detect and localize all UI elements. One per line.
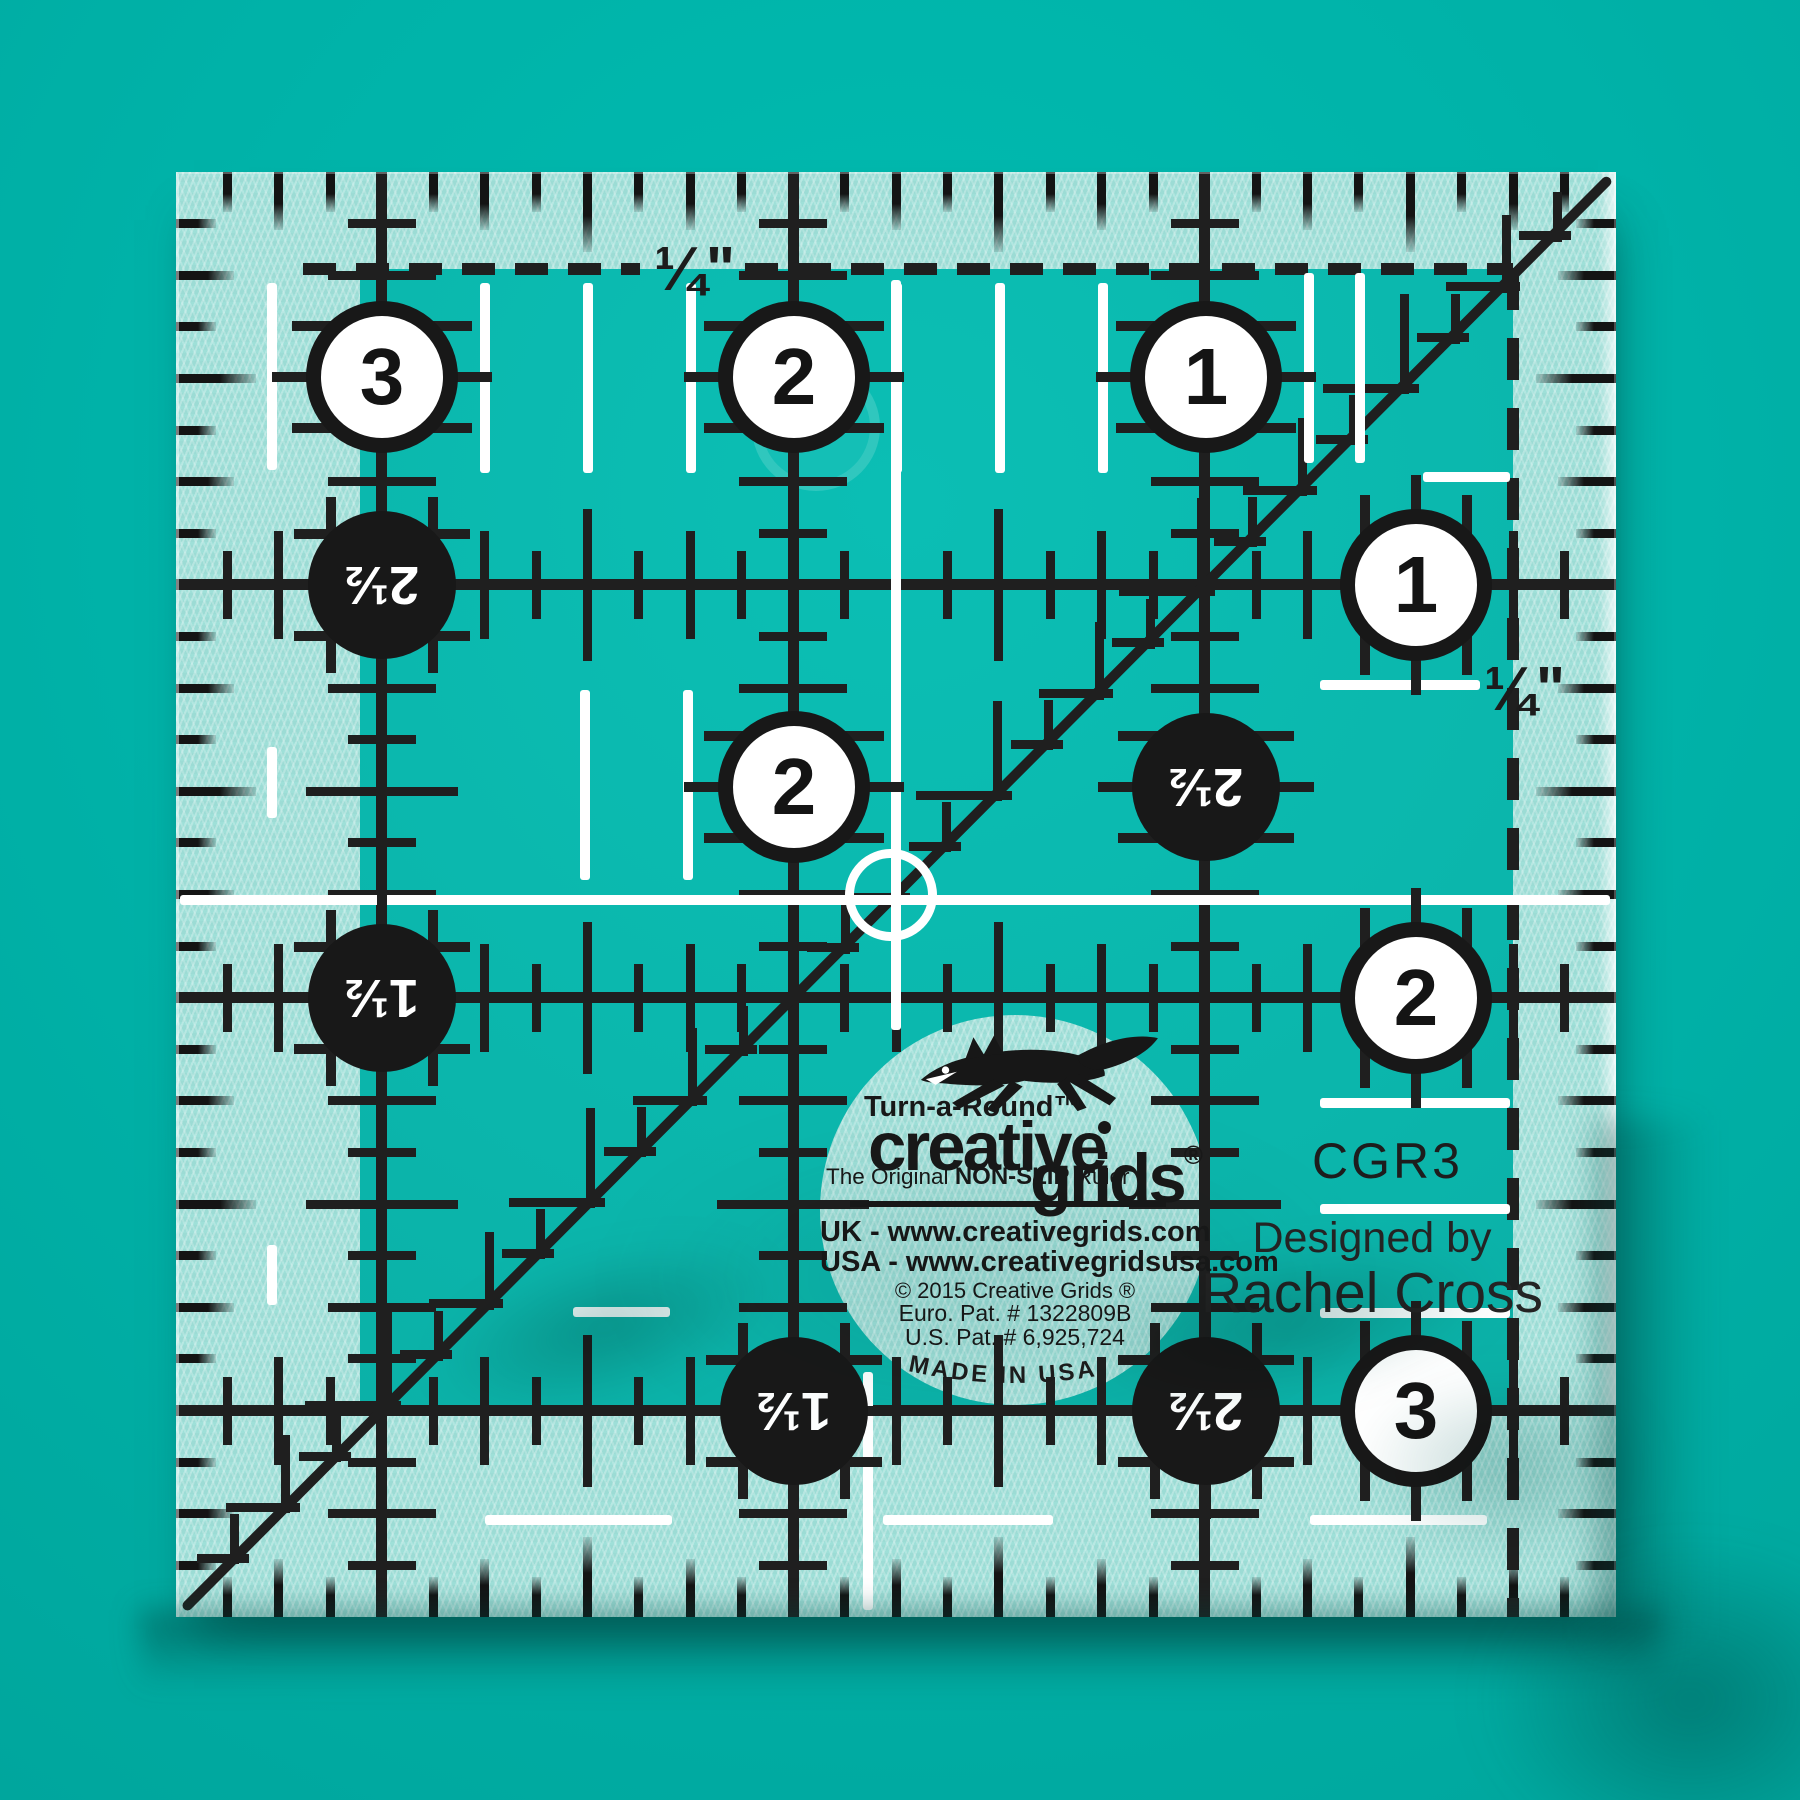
diagonal-feather — [485, 1232, 494, 1310]
diagonal-feather — [909, 842, 961, 851]
cross-tick — [532, 551, 541, 619]
cross-tick — [328, 1509, 436, 1518]
diagonal-feather — [305, 1401, 401, 1410]
cross-tick — [583, 1335, 592, 1487]
cross-tick — [759, 1561, 827, 1570]
cross-tick — [1151, 684, 1259, 693]
measurement-circle-white: 1 — [1340, 509, 1492, 661]
white-quarter-mark — [1304, 273, 1314, 463]
cross-tick — [840, 551, 849, 619]
cross-tick — [480, 1357, 489, 1465]
diagonal-feather — [1417, 333, 1469, 342]
quarter-dashed-line-top — [745, 263, 1513, 275]
cross-tick — [348, 219, 416, 228]
diagonal-feather — [633, 1096, 707, 1105]
edge-tick-bottom — [1097, 1559, 1106, 1617]
cross-tick — [348, 1148, 416, 1157]
cross-tick — [1171, 942, 1239, 951]
creative-grids-logo: Turn-a-Round™ creative The Original NON-… — [820, 1015, 1210, 1405]
cross-tick — [1509, 531, 1518, 639]
cross-tick — [306, 1200, 458, 1209]
diagonal-feather — [1039, 689, 1113, 698]
edge-tick-left — [176, 271, 234, 280]
edge-tick-bottom — [583, 1537, 592, 1617]
measurement-circle-black: 1½ — [308, 924, 456, 1072]
cross-tick — [532, 964, 541, 1032]
diagonal-feather — [400, 1350, 452, 1359]
edge-tick-left — [176, 426, 216, 435]
subtitle-pre: The Original — [826, 1164, 955, 1189]
edge-tick-top — [634, 172, 643, 212]
edge-tick-left — [176, 942, 216, 951]
diagonal-feather — [509, 1198, 605, 1207]
white-quarter-mark — [995, 283, 1005, 473]
edge-tick-left — [176, 322, 216, 331]
cross-tick — [759, 219, 827, 228]
diagonal-feather — [604, 1147, 656, 1156]
cross-tick — [223, 551, 232, 619]
edge-tick-bottom — [480, 1559, 489, 1617]
cross-tick — [1171, 632, 1239, 641]
svg-text:MADE IN USA: MADE IN USA — [907, 1350, 1100, 1389]
usa-url: USA - www.creativegridsusa.com — [820, 1246, 1210, 1279]
white-quarter-mark — [1320, 1204, 1510, 1214]
edge-tick-top — [274, 172, 283, 230]
cross-tick — [348, 1458, 416, 1467]
edge-tick-top — [326, 172, 335, 212]
cross-tick — [348, 735, 416, 744]
edge-tick-top — [1046, 172, 1055, 212]
edge-tick-top — [994, 172, 1003, 252]
edge-tick-right — [1576, 632, 1616, 641]
edge-tick-right — [1576, 735, 1616, 744]
uk-url: UK - www.creativegrids.com — [820, 1216, 1210, 1249]
diagonal-feather — [383, 1312, 392, 1412]
diagonal-feather — [1119, 587, 1215, 596]
diagonal-feather — [1214, 537, 1266, 546]
diagonal-feather — [299, 1452, 351, 1461]
measurement-circle-white: 2 — [718, 711, 870, 863]
cross-tick — [759, 632, 827, 641]
edge-tick-top — [1354, 172, 1363, 212]
edge-tick-top — [429, 172, 438, 212]
cross-tick — [759, 1045, 827, 1054]
diagonal-feather — [705, 1045, 757, 1054]
cross-tick — [759, 1251, 827, 1260]
edge-tick-right — [1558, 1096, 1616, 1105]
cross-tick — [1509, 1357, 1518, 1465]
white-crosshair-circle — [845, 849, 937, 941]
cross-tick — [1151, 271, 1259, 280]
made-in-usa-text: MADE IN USA — [907, 1350, 1100, 1389]
ruler-drop-shadow-bottom — [140, 1610, 1660, 1690]
cross-tick — [306, 787, 458, 796]
cross-tick — [1560, 964, 1569, 1032]
edge-tick-top — [1097, 172, 1106, 230]
diagonal-feather — [1502, 215, 1511, 293]
measurement-circle-white: 3 — [306, 301, 458, 453]
circle-number: 3 — [360, 337, 405, 417]
cross-tick — [1560, 1377, 1569, 1445]
made-in-usa-arc: MADE IN USA — [890, 1345, 1140, 1405]
diagonal-feather — [1400, 294, 1409, 394]
diagonal-feather — [1243, 486, 1317, 495]
cross-tick — [634, 964, 643, 1032]
edge-tick-top — [532, 172, 541, 212]
edge-tick-top — [943, 172, 952, 212]
edge-tick-right — [1558, 271, 1616, 280]
cross-tick — [943, 551, 952, 619]
edge-tick-right — [1576, 322, 1616, 331]
diagonal-feather — [688, 1028, 697, 1106]
cross-tick — [223, 964, 232, 1032]
edge-tick-left — [176, 1096, 234, 1105]
edge-tick-left — [176, 1200, 256, 1209]
registered-mark: ® — [1184, 1140, 1203, 1170]
diagonal-feather — [807, 943, 859, 952]
circle-number: 1 — [1394, 545, 1439, 625]
cross-tick — [583, 509, 592, 661]
edge-tick-bottom — [1303, 1559, 1312, 1617]
cross-tick — [759, 1148, 827, 1157]
measurement-circle-white: 3 — [1340, 1335, 1492, 1487]
diagonal-feather — [712, 994, 808, 1003]
diagonal-feather — [790, 905, 799, 1005]
cross-tick — [223, 1377, 232, 1445]
cross-tick — [328, 1303, 436, 1312]
white-quarter-mark — [485, 1515, 672, 1525]
edge-tick-left — [176, 529, 216, 538]
white-quarter-mark — [583, 283, 593, 473]
edge-tick-bottom — [686, 1559, 695, 1617]
edge-tick-left — [176, 1148, 216, 1157]
cross-tick — [634, 1377, 643, 1445]
cross-tick — [994, 509, 1003, 661]
edge-tick-left — [176, 1303, 234, 1312]
edge-tick-bottom — [892, 1559, 901, 1617]
edge-tick-left — [176, 1251, 216, 1260]
edge-tick-top — [1457, 172, 1466, 212]
circle-number: 1 — [1184, 337, 1229, 417]
quilting-ruler: 32112232½2½1½1½2½ ¼" ¼" CGR3 Designed by… — [176, 172, 1616, 1617]
edge-tick-left — [176, 735, 216, 744]
measurement-circle-white: 2 — [718, 301, 870, 453]
diagonal-feather — [586, 1108, 595, 1208]
cross-tick — [1171, 1561, 1239, 1570]
edge-tick-top — [737, 172, 746, 212]
edge-tick-right — [1576, 219, 1616, 228]
edge-tick-top — [1303, 172, 1312, 230]
edge-tick-top — [480, 172, 489, 230]
diagonal-feather — [281, 1435, 290, 1513]
edge-tick-top — [892, 172, 901, 230]
white-quarter-mark — [883, 1515, 1053, 1525]
edge-tick-left — [176, 1045, 216, 1054]
cross-tick — [1560, 551, 1569, 619]
cross-tick — [348, 838, 416, 847]
edge-tick-bottom — [994, 1537, 1003, 1617]
diagonal-feather — [197, 1554, 249, 1563]
circle-number: 2½ — [1168, 760, 1243, 814]
diagonal-feather — [993, 701, 1002, 801]
cross-tick — [739, 477, 847, 486]
product-photo-scene: 32112232½2½1½1½2½ ¼" ¼" CGR3 Designed by… — [0, 0, 1800, 1800]
edge-tick-bottom — [1406, 1537, 1415, 1617]
cross-tick — [1303, 531, 1312, 639]
quarter-inch-label-top: ¼" — [654, 234, 735, 305]
white-quarter-mark — [1423, 472, 1510, 482]
white-quarter-mark — [267, 747, 277, 818]
measurement-circle-white: 2 — [1340, 922, 1492, 1074]
edge-tick-right — [1576, 838, 1616, 847]
circle-number: 2½ — [344, 558, 419, 612]
circle-number: 3 — [1394, 1371, 1439, 1451]
cross-tick — [739, 271, 847, 280]
white-quarter-mark — [1355, 273, 1365, 463]
edge-tick-left — [176, 838, 216, 847]
edge-tick-bottom — [274, 1559, 283, 1617]
cross-tick — [634, 551, 643, 619]
white-quarter-mark — [1320, 680, 1480, 690]
edge-tick-right — [1576, 529, 1616, 538]
diagonal-feather — [1197, 498, 1206, 598]
edge-tick-top — [583, 172, 592, 252]
diagonal-feather — [226, 1503, 300, 1512]
logo-divider-rule — [850, 1201, 1166, 1207]
edge-tick-right — [1576, 942, 1616, 951]
cross-tick — [1252, 551, 1261, 619]
edge-tick-left — [176, 374, 256, 383]
edge-tick-right — [1558, 684, 1616, 693]
edge-tick-top — [840, 172, 849, 212]
cross-tick — [1046, 551, 1055, 619]
cross-tick — [1509, 944, 1518, 1052]
white-quarter-mark — [573, 1307, 670, 1317]
edge-tick-top — [686, 172, 695, 230]
edge-tick-left — [176, 1458, 216, 1467]
diagonal-feather — [1519, 231, 1571, 240]
cross-tick — [429, 1377, 438, 1445]
circle-number: 1½ — [344, 971, 419, 1025]
edge-tick-top — [1252, 172, 1261, 212]
edge-tick-left — [176, 477, 234, 486]
edge-tick-left — [176, 787, 256, 796]
cross-tick — [328, 271, 436, 280]
circle-number: 2 — [1394, 958, 1439, 1038]
edge-tick-left — [176, 632, 216, 641]
cross-tick — [348, 1251, 416, 1260]
edge-tick-top — [1149, 172, 1158, 212]
cross-tick — [737, 551, 746, 619]
cross-tick — [759, 529, 827, 538]
measurement-circle-black: 2½ — [1132, 713, 1280, 861]
edge-tick-top — [223, 172, 232, 212]
diagonal-feather — [1011, 740, 1063, 749]
cross-tick — [1252, 964, 1261, 1032]
diagonal-feather — [502, 1249, 554, 1258]
diagonal-feather — [1446, 282, 1520, 291]
edge-tick-right — [1558, 477, 1616, 486]
cross-tick — [348, 1561, 416, 1570]
edge-tick-left — [176, 219, 216, 228]
cross-tick — [1171, 219, 1239, 228]
designed-by-label: Designed by — [1252, 1214, 1491, 1263]
model-number: CGR3 — [1312, 1132, 1463, 1190]
measurement-circle-white: 1 — [1130, 301, 1282, 453]
edge-tick-right — [1536, 787, 1616, 796]
white-quarter-mark — [1310, 1515, 1487, 1525]
edge-tick-right — [1536, 374, 1616, 383]
cross-tick — [686, 531, 695, 639]
euro-patent: Euro. Pat. # 1322809B — [820, 1300, 1210, 1327]
white-quarter-mark — [267, 1245, 277, 1305]
cross-tick — [1303, 944, 1312, 1052]
cross-tick — [532, 1377, 541, 1445]
edge-tick-right — [1576, 1045, 1616, 1054]
cross-tick — [583, 922, 592, 1074]
diagonal-feather — [1112, 638, 1164, 647]
diagonal-feather — [916, 791, 1012, 800]
diagonal-feather — [1323, 384, 1419, 393]
brand-dot — [1098, 1121, 1111, 1134]
circle-number: 2 — [772, 337, 817, 417]
diagonal-feather — [1095, 622, 1104, 700]
edge-tick-top — [1406, 172, 1415, 252]
circle-number: 2 — [772, 747, 817, 827]
white-quarter-mark — [580, 690, 590, 880]
measurement-circle-black: 2½ — [308, 511, 456, 659]
quarter-inch-label-right: ¼" — [1484, 654, 1565, 725]
cross-tick — [739, 684, 847, 693]
edge-tick-left — [176, 1354, 216, 1363]
edge-tick-right — [1576, 426, 1616, 435]
diagonal-feather — [429, 1299, 503, 1308]
edge-tick-left — [176, 684, 234, 693]
